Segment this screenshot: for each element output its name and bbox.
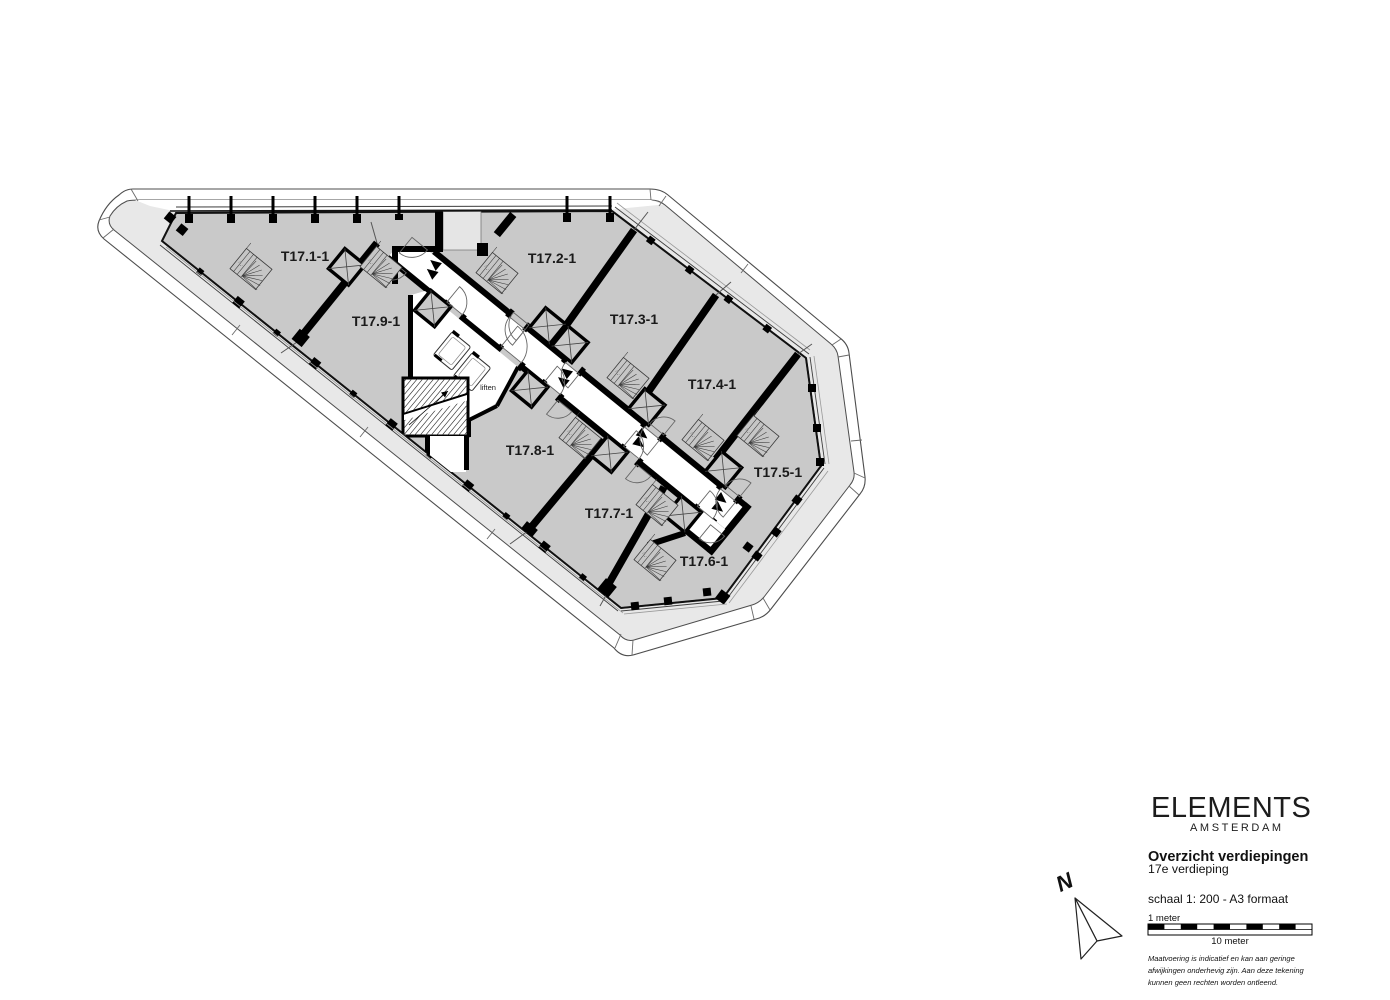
svg-text:Maatvoering is indicatief en k: Maatvoering is indicatief en kan aan ger… <box>1148 954 1295 963</box>
svg-text:AMSTERDAM: AMSTERDAM <box>1190 822 1284 834</box>
svg-text:T17.4-1: T17.4-1 <box>688 376 736 392</box>
svg-text:T17.2-1: T17.2-1 <box>528 250 576 266</box>
svg-text:ELEMENTS: ELEMENTS <box>1151 792 1311 824</box>
svg-text:T17.8-1: T17.8-1 <box>506 442 554 458</box>
svg-text:10 meter: 10 meter <box>1211 936 1249 947</box>
svg-text:T17.6-1: T17.6-1 <box>680 553 728 569</box>
svg-text:1 meter: 1 meter <box>1148 913 1180 924</box>
svg-text:T17.3-1: T17.3-1 <box>610 311 658 327</box>
svg-text:T17.5-1: T17.5-1 <box>754 464 802 480</box>
svg-text:afwijkingen onderhevig zijn. A: afwijkingen onderhevig zijn. Aan deze te… <box>1148 966 1304 975</box>
svg-text:kunnen geen rechten worden ont: kunnen geen rechten worden ontleend. <box>1148 978 1278 987</box>
svg-text:T17.1-1: T17.1-1 <box>281 248 329 264</box>
svg-text:schaal 1: 200 - A3 formaat: schaal 1: 200 - A3 formaat <box>1148 892 1289 906</box>
svg-text:17e verdieping: 17e verdieping <box>1148 862 1229 876</box>
svg-text:T17.9-1: T17.9-1 <box>352 313 400 329</box>
svg-text:liften: liften <box>480 383 496 392</box>
svg-text:T17.7-1: T17.7-1 <box>585 505 633 521</box>
